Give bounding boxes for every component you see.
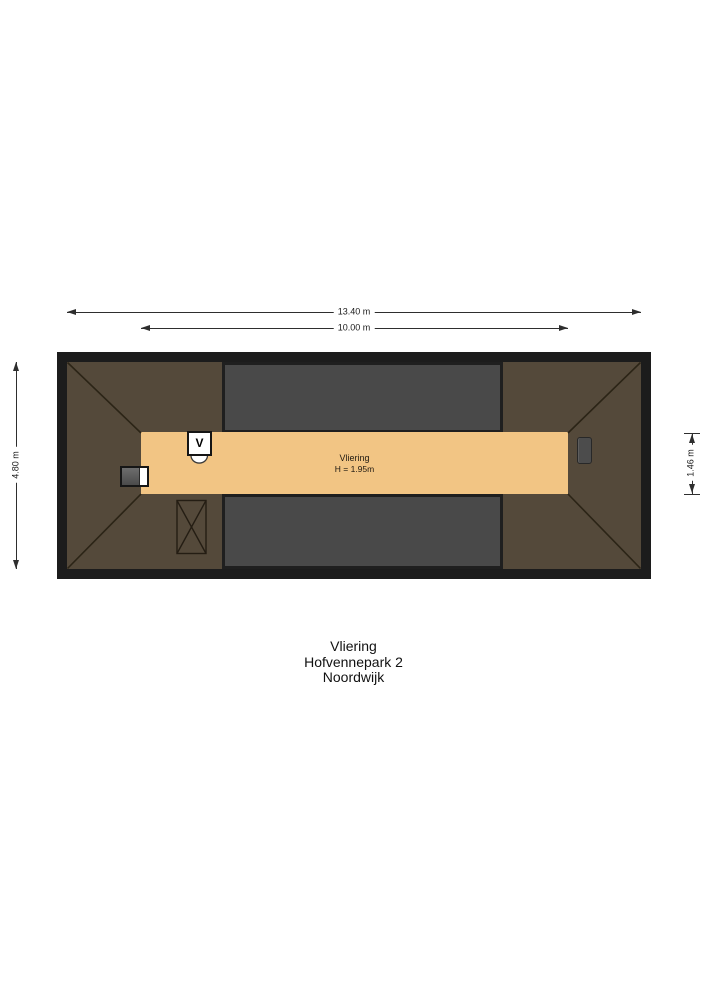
- dormer-top: [222, 362, 503, 433]
- footer-city: Noordwijk: [0, 670, 707, 686]
- ventilation-symbol: V: [195, 436, 203, 450]
- dimension-label: 4.80 m: [11, 447, 22, 483]
- ventilation-unit: V: [187, 431, 212, 456]
- arrow-up-icon: [13, 362, 19, 371]
- arrow-left-icon: [141, 325, 150, 331]
- title-block: Vliering Hofvennepark 2 Noordwijk: [0, 639, 707, 686]
- chimney-box: [577, 437, 592, 464]
- floorplan-canvas: 13.40 m 10.00 m 4.80 m 1.46 m Vliering H…: [0, 0, 707, 1000]
- footer-title: Vliering: [0, 639, 707, 655]
- duct-box-grille: [122, 468, 140, 485]
- room-label: Vliering: [339, 452, 369, 464]
- footer-address: Hofvennepark 2: [0, 655, 707, 671]
- dimension-label: 10.00 m: [334, 323, 375, 334]
- arrow-down-icon: [689, 484, 695, 493]
- room-height-label: H = 1.95m: [335, 464, 374, 475]
- arrow-right-icon: [559, 325, 568, 331]
- dimension-label: 1.46 m: [686, 445, 697, 481]
- arrow-up-icon: [689, 434, 695, 443]
- duct-box-opening: [140, 468, 147, 485]
- arrow-right-icon: [632, 309, 641, 315]
- dimension-label: 13.40 m: [334, 307, 375, 318]
- dimension-tick: [684, 494, 700, 495]
- dormer-bottom: [222, 494, 503, 569]
- arrow-left-icon: [67, 309, 76, 315]
- duct-box: [120, 466, 149, 487]
- arrow-down-icon: [13, 560, 19, 569]
